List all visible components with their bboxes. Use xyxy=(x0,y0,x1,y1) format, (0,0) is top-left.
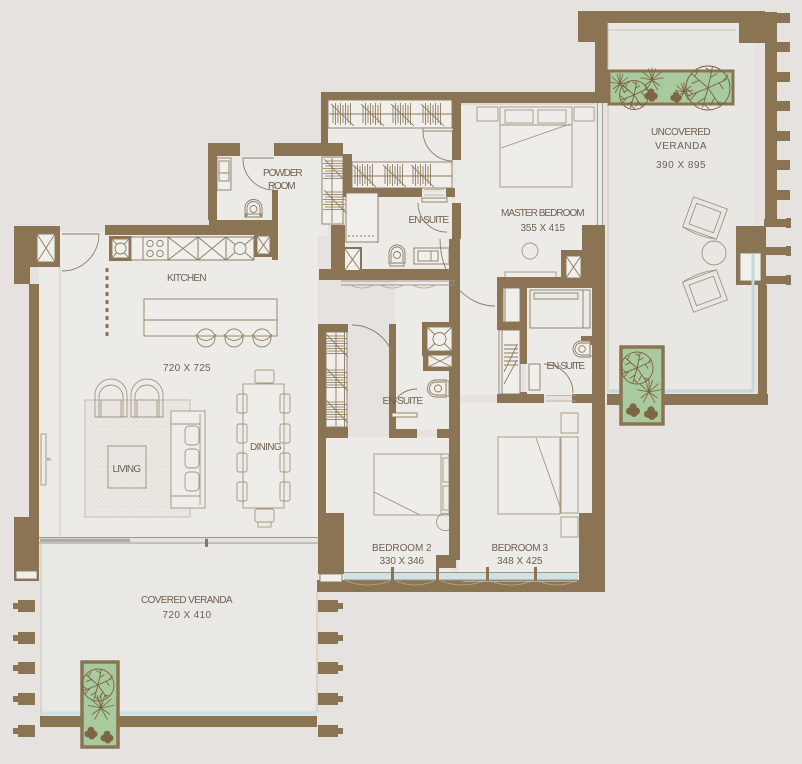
svg-text:UNCOVERED: UNCOVERED xyxy=(651,127,711,138)
svg-text:TV: TV xyxy=(47,457,52,462)
svg-text:ROOM: ROOM xyxy=(268,181,296,192)
svg-text:390 X 895: 390 X 895 xyxy=(656,160,706,171)
svg-text:348 X 425: 348 X 425 xyxy=(497,556,543,567)
svg-text:EN-SUITE: EN-SUITE xyxy=(383,396,424,407)
svg-text:BEDROOM 2: BEDROOM 2 xyxy=(372,543,432,554)
svg-text:BEDROOM 3: BEDROOM 3 xyxy=(492,543,549,554)
svg-text:720 X 725: 720 X 725 xyxy=(163,363,211,374)
svg-text:POWDER: POWDER xyxy=(263,168,303,179)
svg-text:EN-SUITE: EN-SUITE xyxy=(409,215,450,226)
svg-text:720 X 410: 720 X 410 xyxy=(163,610,212,621)
svg-text:KITCHEN: KITCHEN xyxy=(167,273,207,284)
svg-text:330 X 346: 330 X 346 xyxy=(380,556,425,567)
svg-text:COVERED VERANDA: COVERED VERANDA xyxy=(141,595,233,606)
svg-text:VERANDA: VERANDA xyxy=(655,141,707,152)
svg-text:LIVING: LIVING xyxy=(113,464,142,475)
svg-text:EN-SUITE: EN-SUITE xyxy=(547,361,586,372)
svg-text:DINING: DINING xyxy=(250,442,282,453)
svg-text:355 X 415: 355 X 415 xyxy=(521,223,566,234)
svg-text:MASTER BEDROOM: MASTER BEDROOM xyxy=(501,208,585,219)
